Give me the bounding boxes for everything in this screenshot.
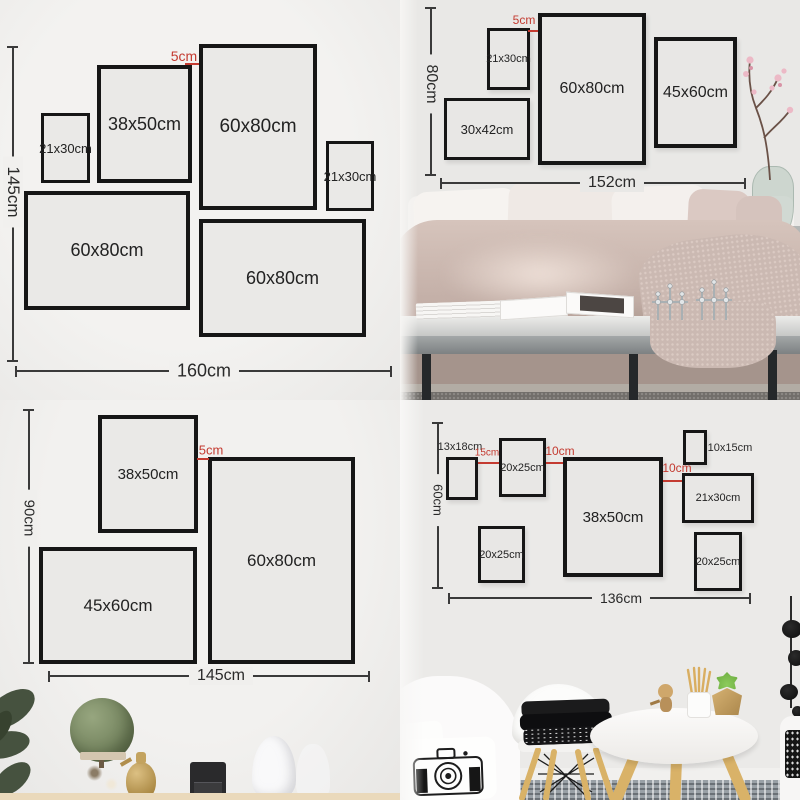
frame-size-label: 60x80cm (560, 80, 625, 98)
frame-20x25: 20x25cm (499, 438, 546, 497)
frame-size-label-outside: 10x15cm (708, 442, 753, 454)
gap-dimension-label: 5cm (199, 443, 224, 458)
book-page (500, 296, 568, 321)
gap-dimension-line (546, 462, 563, 464)
chair-legs (514, 748, 618, 800)
frame-size-label: 30x42cm (461, 122, 514, 137)
frame-size-label: 45x60cm (663, 84, 728, 102)
frame-size-label: 21x30cm (486, 53, 531, 65)
frame-60x80: 60x80cm (199, 219, 366, 337)
dimension-tick (749, 593, 751, 604)
height-dimension-label: 90cm (21, 490, 38, 547)
frame-20x25: 20x25cm (694, 532, 742, 591)
magazine-stack (416, 301, 503, 320)
frame-60x80: 60x80cm (24, 191, 190, 310)
quadrant-top-right-bedroom: 80cm 152cm 21x30cm 60x80cm 45x60cm 30x42… (400, 0, 800, 400)
dimension-tick (23, 409, 34, 411)
frame-size-label: 21x30cm (696, 492, 741, 504)
frame-size-label: 20x25cm (500, 462, 545, 474)
bench-leg (768, 350, 777, 400)
hanging-plant (782, 620, 800, 638)
frame-38x50: 38x50cm (98, 415, 198, 533)
dimension-tick (23, 662, 34, 664)
dimension-tick (48, 671, 50, 682)
frame-45x60: 45x60cm (39, 547, 197, 664)
frame-13x18 (446, 457, 478, 500)
gap-dimension-label: 5cm (513, 13, 536, 27)
watering-can-top (136, 752, 146, 764)
frame-size-label: 60x80cm (247, 551, 316, 571)
frame-size-label: 60x80cm (219, 116, 296, 138)
glass-bottle (296, 744, 330, 800)
gap-dimension-line (528, 30, 538, 32)
book-photo (580, 295, 624, 313)
hanging-plant (780, 684, 798, 700)
frame-30x42: 30x42cm (444, 98, 530, 160)
camera-icon (400, 736, 497, 800)
pencil-cup (687, 692, 711, 718)
frame-size-label: 60x80cm (246, 268, 319, 289)
frame-size-label: 21x30cm (39, 141, 92, 156)
width-dimension-label: 160cm (169, 361, 239, 382)
dimension-tick (425, 7, 436, 9)
frame-size-label: 38x50cm (108, 114, 181, 135)
gap-dimension-label: 15cm (475, 448, 499, 459)
frame-21x30: 21x30cm (41, 113, 90, 183)
frame-38x50: 38x50cm (97, 65, 192, 183)
width-dimension-label: 136cm (592, 590, 650, 606)
dimension-tick (7, 46, 18, 48)
succulent-plant (716, 672, 738, 690)
open-book (500, 294, 636, 320)
round-table-top (590, 708, 758, 764)
frame-layout-collage: 145cm 160cm 21x30cm 38x50cm 60x80cm 21x3… (0, 0, 800, 800)
dimension-tick (15, 366, 17, 377)
gap-dimension-line (478, 462, 499, 464)
dimension-tick (744, 178, 746, 189)
frame-20x25: 20x25cm (478, 526, 525, 583)
candlestick-holders (650, 276, 738, 320)
carpet (400, 392, 800, 400)
frame-size-label: 20x25cm (479, 549, 524, 561)
gap-dimension-line (197, 458, 209, 460)
dimension-tick (432, 587, 443, 589)
frame-60x80: 60x80cm (208, 457, 355, 664)
gap-dimension-line (185, 63, 199, 65)
patterned-pillow (785, 730, 800, 778)
frame-10x15 (683, 430, 707, 465)
wooden-toy-arm (650, 699, 660, 705)
frame-38x50: 38x50cm (563, 457, 663, 577)
frame-size-label: 20x25cm (696, 556, 741, 568)
white-vase (252, 736, 296, 800)
camera-print-pillow (400, 736, 497, 800)
bench-leg (422, 354, 431, 400)
frame-60x80: 60x80cm (538, 13, 646, 165)
bench-leg (629, 354, 638, 400)
gap-dimension-label: 10cm (662, 461, 691, 475)
gap-dimension-label: 5cm (171, 48, 197, 64)
hanging-plant (788, 650, 800, 666)
dimension-tick (425, 174, 436, 176)
dimension-tick (440, 178, 442, 189)
frame-60x80: 60x80cm (199, 44, 317, 210)
gap-dimension-label: 10cm (545, 444, 574, 458)
frame-size-label: 38x50cm (118, 466, 179, 483)
width-dimension-label: 152cm (580, 174, 644, 192)
frame-45x60: 45x60cm (654, 37, 737, 148)
height-dimension-label: 80cm (422, 54, 440, 113)
dimension-tick (432, 422, 443, 424)
gap-dimension-line (663, 480, 682, 482)
width-dimension-label: 145cm (189, 667, 253, 685)
quadrant-top-left-diagram: 145cm 160cm 21x30cm 38x50cm 60x80cm 21x3… (0, 0, 400, 400)
height-dimension-label: 60cm (431, 474, 446, 526)
dimension-tick (368, 671, 370, 682)
frame-size-label: 45x60cm (84, 596, 153, 616)
frame-21x30: 21x30cm (682, 473, 754, 523)
frame-size-label: 38x50cm (583, 509, 644, 526)
plant-leaves (0, 683, 70, 800)
frame-size-label: 60x80cm (70, 240, 143, 261)
quadrant-bottom-right-dining: 60cm 136cm 13x18cm 20x25cm 38x50cm 10x15… (400, 400, 800, 800)
frame-21x30: 21x30cm (326, 141, 374, 211)
dimension-tick (448, 593, 450, 604)
dimension-tick (390, 366, 392, 377)
wooden-toy-body (660, 697, 672, 712)
frame-21x30: 21x30cm (487, 28, 530, 90)
geometric-planter (712, 688, 742, 715)
quadrant-bottom-left-diagram: 90cm 145cm 38x50cm 60x80cm 45x60cm 5cm (0, 400, 400, 800)
height-dimension-label: 145cm (3, 156, 23, 227)
dimension-tick (7, 360, 18, 362)
tabletop-edge (0, 793, 400, 800)
frame-size-label: 21x30cm (324, 169, 377, 184)
